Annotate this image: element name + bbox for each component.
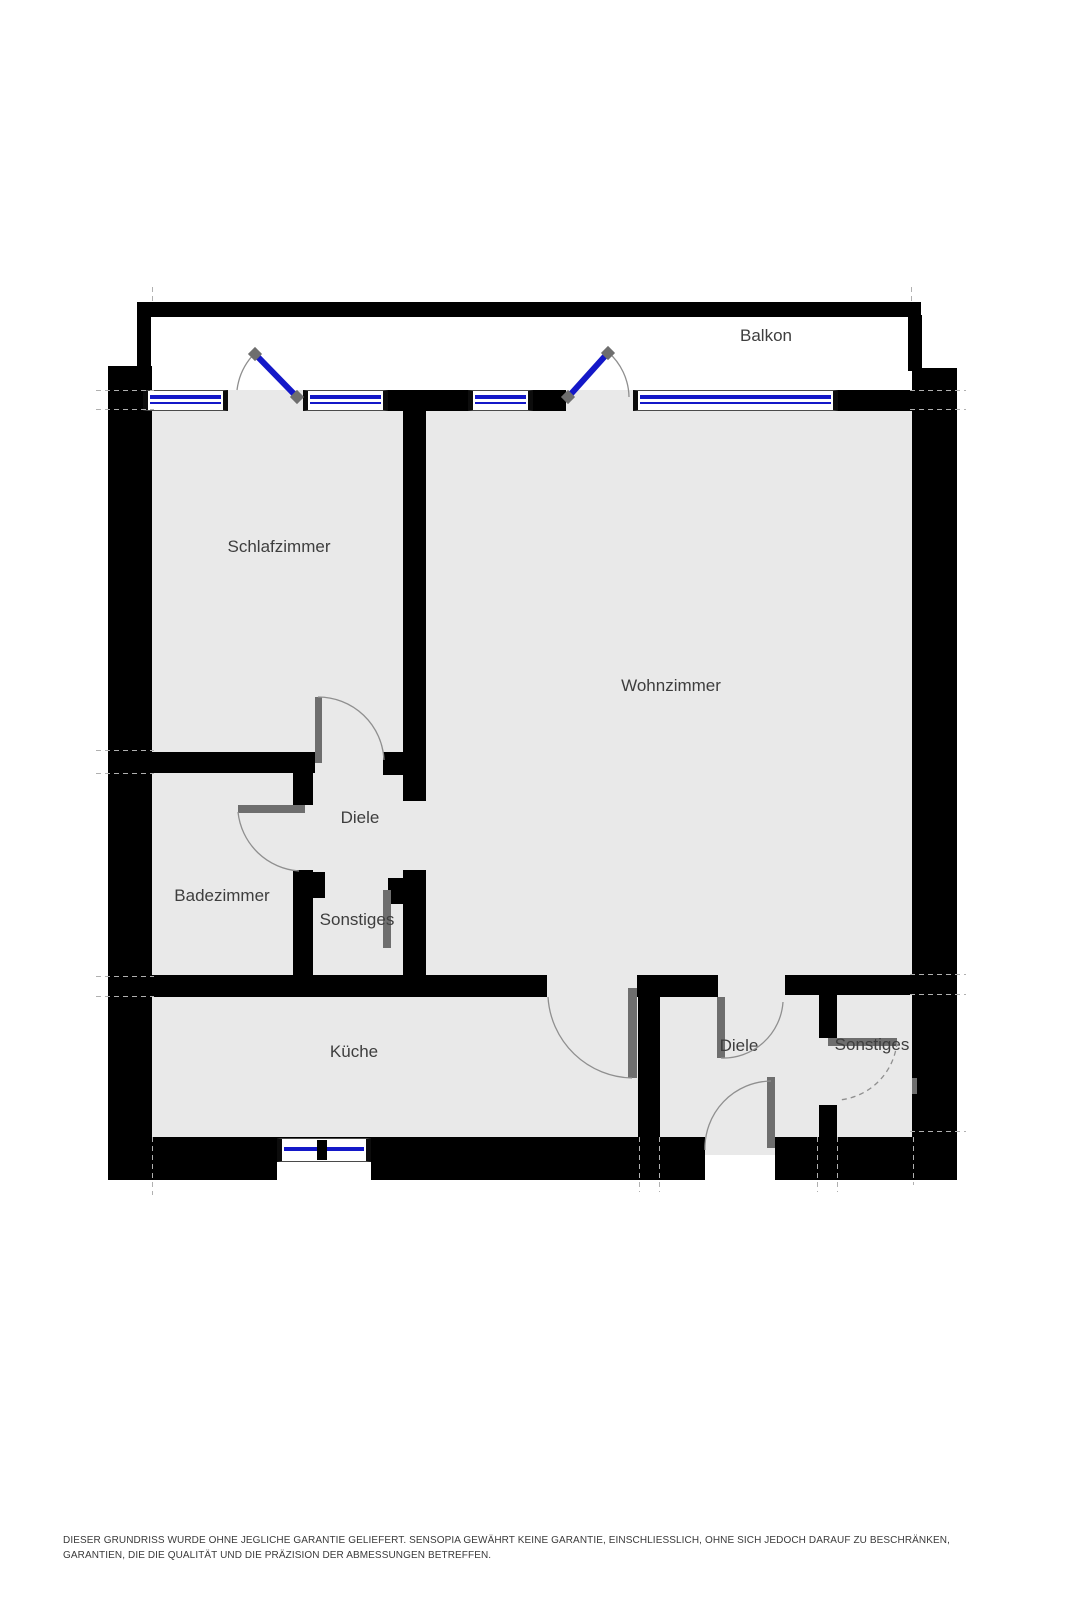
disclaimer-text: DIESER GRUNDRISS WURDE OHNE JEGLICHE GAR…: [63, 1533, 1013, 1563]
dash-line: [96, 390, 154, 391]
entrance-door-leaf: [767, 1077, 775, 1148]
dash-line: [817, 1137, 818, 1192]
dash-line: [837, 1137, 838, 1192]
badezimmer-door-pier: [313, 872, 325, 898]
lower-diele-top-wall: [637, 975, 718, 997]
schlafzimmer-door-leaf: [315, 697, 322, 763]
dash-line: [639, 1137, 640, 1192]
dash-line: [911, 287, 912, 302]
schlafzimmer-wohnzimmer-wall: [403, 408, 426, 801]
right-outer-wall: [912, 368, 957, 1180]
dash-line: [96, 996, 154, 997]
room-label-badezimmer: Badezimmer: [174, 886, 269, 906]
separator-wall-upper: [819, 995, 837, 1038]
lower-sonstiges-top-wall: [785, 975, 915, 995]
window-pier-right: [533, 390, 566, 411]
dash-line: [910, 994, 966, 995]
dash-line: [913, 1137, 914, 1185]
kueche-top-wall: [108, 975, 547, 997]
kueche-door-leaf: [628, 988, 637, 1078]
dash-line: [96, 409, 154, 410]
kueche-window-mullion: [317, 1140, 327, 1160]
floorplan: BalkonSchlafzimmerWohnzimmerDieleBadezim…: [0, 0, 1067, 1600]
dash-line: [96, 976, 154, 977]
kueche-window-recess: [277, 1162, 371, 1180]
dash-line: [659, 1137, 660, 1192]
dash-line: [152, 287, 153, 302]
room-label-balkon: Balkon: [740, 326, 792, 346]
dash-line: [910, 974, 966, 975]
window-schlafzimmer-right: [303, 390, 388, 411]
balcony-right-wall: [908, 315, 922, 371]
dash-line: [910, 390, 966, 391]
room-label-kche: Küche: [330, 1042, 378, 1062]
dash-line: [96, 750, 154, 751]
lower-diele-left-wall: [638, 975, 660, 1137]
room-label-schlafzimmer: Schlafzimmer: [228, 537, 331, 557]
balcony-top-wall: [137, 302, 921, 317]
badezimmer-right-wall-upper: [293, 773, 313, 805]
separator-wall-lower: [819, 1105, 837, 1137]
window-wohnzimmer-left: [468, 390, 533, 411]
room-label-diele: Diele: [341, 808, 380, 828]
window-pier-far-right: [838, 390, 912, 411]
room-label-sonstiges: Sonstiges: [320, 910, 395, 930]
bottom-wall-right: [775, 1137, 957, 1180]
bottom-wall-left: [108, 1137, 705, 1180]
door-mark: [912, 1078, 917, 1094]
badezimmer-door-leaf: [238, 805, 305, 813]
badezimmer-right-wall-lower: [293, 870, 313, 977]
room-label-diele: Diele: [720, 1036, 759, 1056]
schlafzimmer-door-stub: [383, 752, 403, 775]
floorplan-canvas: BalkonSchlafzimmerWohnzimmerDieleBadezim…: [0, 0, 1067, 1600]
dash-line: [96, 773, 154, 774]
dash-line: [910, 1131, 966, 1132]
room-label-sonstiges: Sonstiges: [835, 1035, 910, 1055]
diele-wall-lower: [403, 870, 426, 977]
window-wohnzimmer-right: [633, 390, 838, 411]
window-pier-center: [388, 390, 468, 411]
entrance-floor-tongue: [705, 1137, 775, 1155]
dash-line: [910, 409, 966, 410]
room-label-wohnzimmer: Wohnzimmer: [621, 676, 721, 696]
schlafzimmer-bottom-wall: [151, 752, 315, 773]
window-schlafzimmer-left: [143, 390, 228, 411]
dash-line: [152, 1137, 153, 1195]
